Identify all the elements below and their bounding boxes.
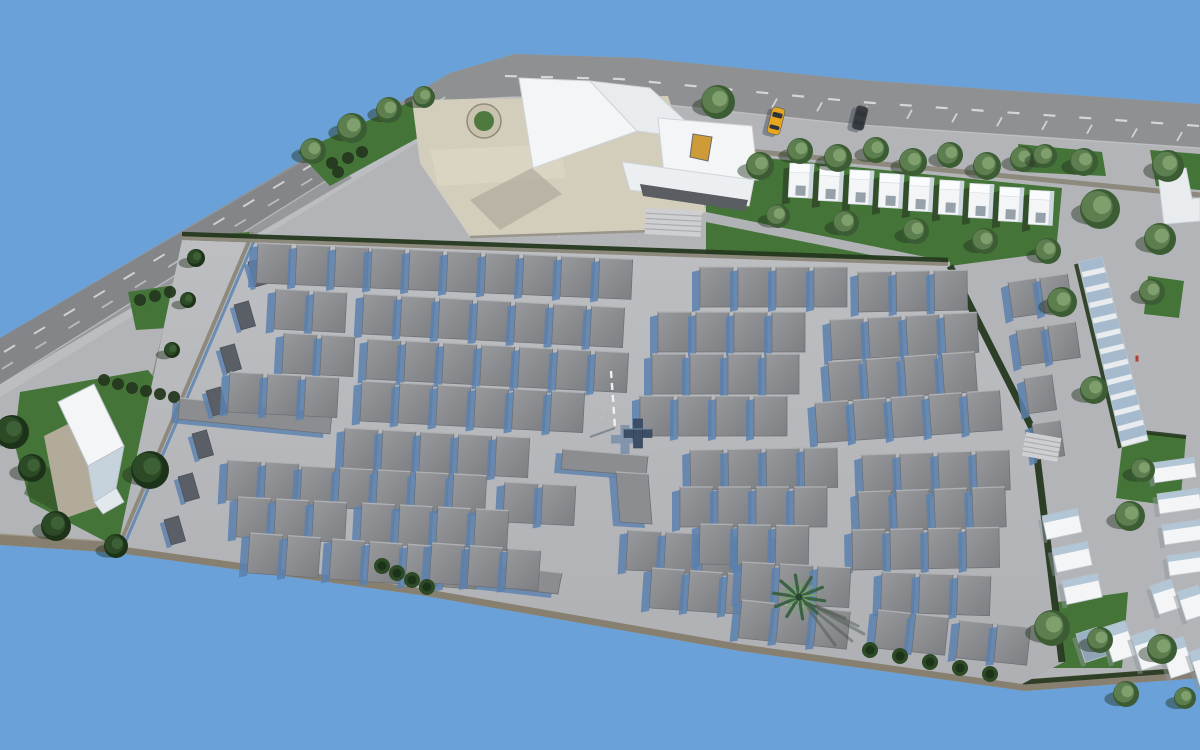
bush <box>342 152 354 164</box>
bush <box>140 385 152 397</box>
grave-plot-row <box>632 396 787 441</box>
bush <box>154 388 166 400</box>
bush <box>112 378 124 390</box>
grave-plot-row <box>850 270 968 317</box>
figures <box>1135 352 1139 361</box>
bush <box>126 382 138 394</box>
grave-plot-row <box>644 354 799 399</box>
bush <box>98 374 110 386</box>
grave-plot-row <box>692 267 847 312</box>
skylight <box>690 134 712 161</box>
bush <box>134 294 146 306</box>
bush <box>356 146 368 158</box>
bush <box>168 391 180 403</box>
bush <box>332 166 344 178</box>
cemetery-aerial-render <box>0 0 1200 750</box>
grave-plot-row <box>844 527 1000 575</box>
bush <box>149 290 161 302</box>
render-viewport <box>0 0 1200 750</box>
person <box>1135 352 1139 361</box>
stairs <box>645 208 702 237</box>
grave-plot-row <box>650 312 805 357</box>
bush <box>164 286 176 298</box>
